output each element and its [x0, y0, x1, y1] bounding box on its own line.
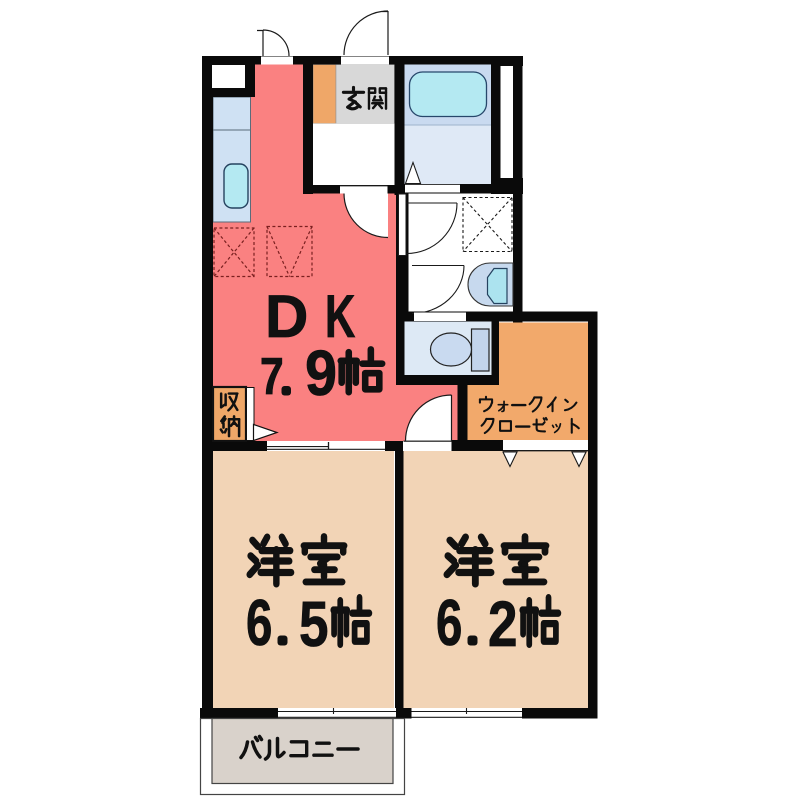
svg-text:2: 2: [488, 589, 518, 660]
svg-text:D: D: [265, 283, 308, 350]
svg-text:9: 9: [305, 337, 337, 408]
svg-text:6: 6: [436, 587, 462, 660]
svg-text:5: 5: [299, 589, 329, 660]
svg-text:7: 7: [260, 348, 284, 406]
svg-text:6: 6: [246, 587, 272, 660]
